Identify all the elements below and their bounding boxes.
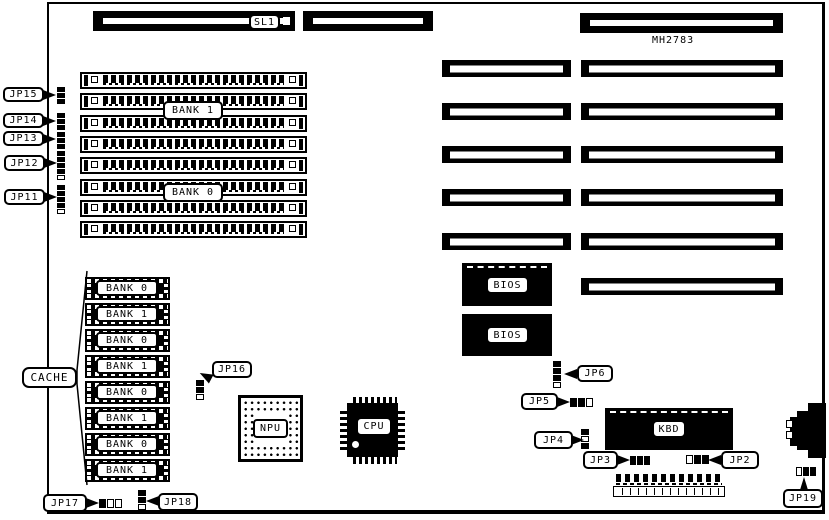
kbd-chip-notch-line — [610, 411, 728, 413]
jp13-jumper-block — [57, 132, 65, 149]
cache-chip-label: BANK 0 — [96, 384, 158, 400]
bios-label: BIOS — [487, 327, 528, 343]
keyboard-controller-chip: KBD — [605, 408, 733, 450]
simm-slot — [80, 200, 307, 217]
jp17-jumper-block — [99, 499, 122, 508]
jp2-label: JP2 — [721, 451, 759, 469]
power-connector — [613, 474, 725, 497]
power-connector-sockets — [613, 486, 725, 497]
power-connector-divider — [616, 483, 722, 485]
motherboard-diagram: SL1 MH2783 BANK 1 BANK 0 JP15 JP14 JP13 … — [0, 0, 829, 520]
cpu-pin1-dot — [352, 441, 359, 448]
jp12-jumper-block — [57, 151, 65, 180]
cache-chip: BANK 0 — [85, 381, 170, 404]
din-notch — [786, 420, 793, 428]
expansion-slot — [581, 146, 783, 163]
jp5-callout-tail — [557, 397, 570, 407]
jp11-label: JP11 — [4, 189, 45, 205]
expansion-slot — [442, 189, 571, 206]
expansion-slot — [442, 146, 571, 163]
jp14-label: JP14 — [3, 113, 44, 128]
npu-label: NPU — [253, 419, 288, 438]
power-connector-pins — [616, 474, 722, 482]
cache-chip-label: BANK 1 — [96, 358, 158, 374]
expansion-slot — [581, 189, 783, 206]
expansion-slot — [442, 103, 571, 120]
simm-bank1-label: BANK 1 — [163, 101, 223, 120]
jp4-label: JP4 — [534, 431, 573, 449]
slot-sl1-label: SL1 — [249, 14, 280, 30]
jp13-label: JP13 — [3, 131, 44, 146]
jp19-callout-tail — [800, 477, 808, 490]
cache-chip: BANK 1 — [85, 459, 170, 482]
cpu-chip: CPU — [338, 397, 407, 464]
bios-chip: BIOS — [462, 314, 552, 356]
jp12-callout-tail — [44, 158, 57, 168]
jp5-label: JP5 — [521, 393, 558, 410]
expansion-slot — [442, 233, 571, 250]
cache-chip: BANK 1 — [85, 407, 170, 430]
jp2-jumper-block — [686, 455, 709, 464]
expansion-slot — [580, 13, 783, 33]
jp6-jumper-block — [553, 361, 561, 388]
jp13-callout-tail — [43, 134, 56, 144]
simm-slot — [80, 221, 307, 238]
expansion-slot — [303, 11, 433, 31]
jp6-callout-tail — [564, 369, 577, 379]
bios-label: BIOS — [487, 277, 528, 293]
jp4-callout-tail — [571, 435, 584, 445]
cpu-pins-right — [398, 410, 405, 450]
expansion-slot — [581, 233, 783, 250]
jp6-label: JP6 — [577, 365, 613, 382]
jp3-label: JP3 — [583, 451, 618, 469]
cpu-pins-left — [340, 410, 347, 450]
cache-chip: BANK 0 — [85, 277, 170, 300]
jp16-label: JP16 — [212, 361, 252, 378]
jp18-label: JP18 — [158, 493, 198, 511]
expansion-slot — [581, 103, 783, 120]
cpu-label: CPU — [357, 418, 391, 435]
cpu-pins-bottom — [353, 457, 397, 464]
part-number: MH2783 — [652, 35, 694, 46]
jp15-jumper-block — [57, 87, 65, 104]
cache-chip-label: BANK 0 — [96, 280, 158, 296]
kbd-label: KBD — [653, 421, 685, 437]
npu-socket: NPU — [238, 395, 303, 462]
jp3-jumper-block — [630, 456, 650, 465]
simm-slot — [80, 136, 307, 153]
jp14-callout-tail — [43, 116, 56, 126]
jp3-callout-tail — [617, 455, 630, 465]
jp19-jumper-block — [796, 467, 816, 476]
cache-chip: BANK 1 — [85, 303, 170, 326]
cache-chip: BANK 1 — [85, 355, 170, 378]
jp17-label: JP17 — [43, 494, 87, 512]
simm-slot — [80, 72, 307, 89]
din-notch — [786, 431, 793, 439]
cache-chip-label: BANK 1 — [96, 410, 158, 426]
jp15-callout-tail — [43, 90, 56, 100]
jp2-callout-tail — [708, 455, 721, 465]
simm-slot — [80, 157, 307, 174]
bios-chip-notch-line — [467, 266, 547, 268]
jp16-jumper-block — [196, 380, 204, 400]
jp18-callout-tail — [146, 496, 159, 506]
expansion-slot — [442, 60, 571, 77]
jp18-jumper-block — [138, 490, 146, 510]
jp5-jumper-block — [570, 398, 593, 407]
expansion-slot — [581, 278, 783, 295]
cache-chip-label: BANK 0 — [96, 436, 158, 452]
cache-chip-label: BANK 1 — [96, 462, 158, 478]
jp11-jumper-block — [57, 185, 65, 214]
jp19-label: JP19 — [783, 489, 823, 508]
cache-chip-label: BANK 0 — [96, 332, 158, 348]
jp17-callout-tail — [86, 498, 99, 508]
bios-chip: BIOS — [462, 263, 552, 306]
simm-bank0-label: BANK 0 — [163, 183, 223, 202]
slot-key-notch — [283, 17, 290, 25]
cache-label: CACHE — [22, 367, 77, 388]
jp14-jumper-block — [57, 113, 65, 130]
cache-chip: BANK 0 — [85, 433, 170, 456]
jp12-label: JP12 — [4, 155, 45, 171]
cache-chip-label: BANK 1 — [96, 306, 158, 322]
jp11-callout-tail — [44, 192, 57, 202]
expansion-slot — [581, 60, 783, 77]
jp15-label: JP15 — [3, 87, 44, 102]
cache-chip: BANK 0 — [85, 329, 170, 352]
